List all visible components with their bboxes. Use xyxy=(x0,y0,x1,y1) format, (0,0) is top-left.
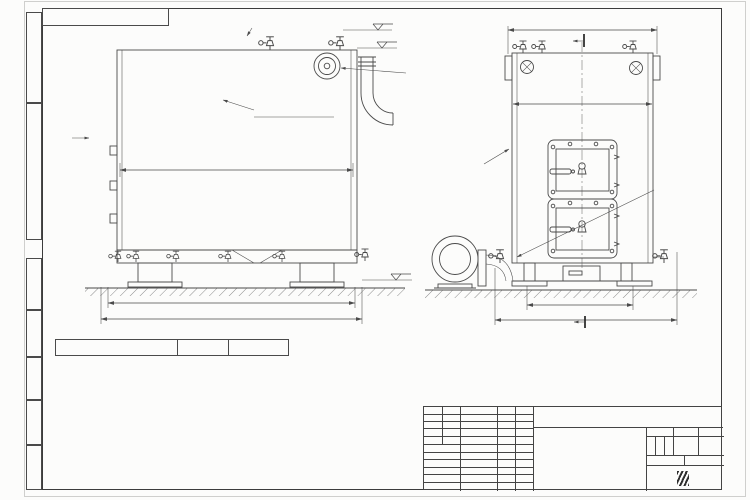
document-title xyxy=(533,428,646,491)
boiler-front-view xyxy=(425,41,697,298)
tb-scale-label xyxy=(699,428,724,437)
ash-drawer xyxy=(563,266,600,281)
revision-row xyxy=(424,429,533,437)
revision-row xyxy=(424,415,533,422)
tb-lit-label xyxy=(647,428,674,437)
tb-sig-cell xyxy=(460,460,533,468)
lifting-lug-right xyxy=(630,62,643,75)
blower-fan xyxy=(432,236,513,288)
tb-lit-cell2 xyxy=(656,437,665,456)
spec-header-value xyxy=(229,340,289,356)
tb-right-info xyxy=(646,428,723,491)
spec-header-name xyxy=(56,340,178,356)
tb-sig-cell xyxy=(460,445,533,453)
tb-row-prov xyxy=(424,453,460,461)
tb-col-ndokum xyxy=(460,437,497,445)
revision-row xyxy=(424,422,533,429)
furnace-door-lower xyxy=(548,199,619,258)
revision-row xyxy=(424,407,533,415)
spec-table xyxy=(55,339,289,356)
tb-sig-cell xyxy=(460,475,533,483)
tb-col-list xyxy=(442,437,460,445)
tb-row-tkontr xyxy=(424,460,460,468)
tb-scale-value xyxy=(699,437,724,456)
side-inlet-flange xyxy=(314,53,340,79)
tb-sheet-cell xyxy=(647,456,685,466)
spec-header-row xyxy=(56,340,289,356)
spec-header-units xyxy=(178,340,229,356)
furnace-door-upper xyxy=(548,140,619,199)
tb-sheets-cell xyxy=(685,456,724,466)
document-designation xyxy=(533,407,723,428)
tb-row-utv xyxy=(424,483,460,491)
tb-sig-cell xyxy=(460,468,533,476)
tb-mass-label xyxy=(674,428,699,437)
tb-mass-value xyxy=(674,437,699,456)
kvzr-logo-icon xyxy=(677,471,689,486)
tb-lit-value xyxy=(647,437,656,456)
boiler-side-view xyxy=(85,37,405,296)
tb-row-nkontr xyxy=(424,475,460,483)
tb-col-podp xyxy=(497,437,515,445)
tb-col-data xyxy=(515,437,533,445)
tb-sig-cell xyxy=(460,453,533,461)
title-block xyxy=(423,406,722,490)
drawing-sheet xyxy=(0,0,750,500)
tb-row-blank xyxy=(424,468,460,476)
tb-lit-cell3 xyxy=(665,437,674,456)
lifting-lug-left xyxy=(521,61,534,74)
outlet-pipe-elbow xyxy=(358,57,393,125)
tb-col-izm xyxy=(424,437,442,445)
tb-row-razrab xyxy=(424,445,460,453)
company-box xyxy=(647,466,724,491)
